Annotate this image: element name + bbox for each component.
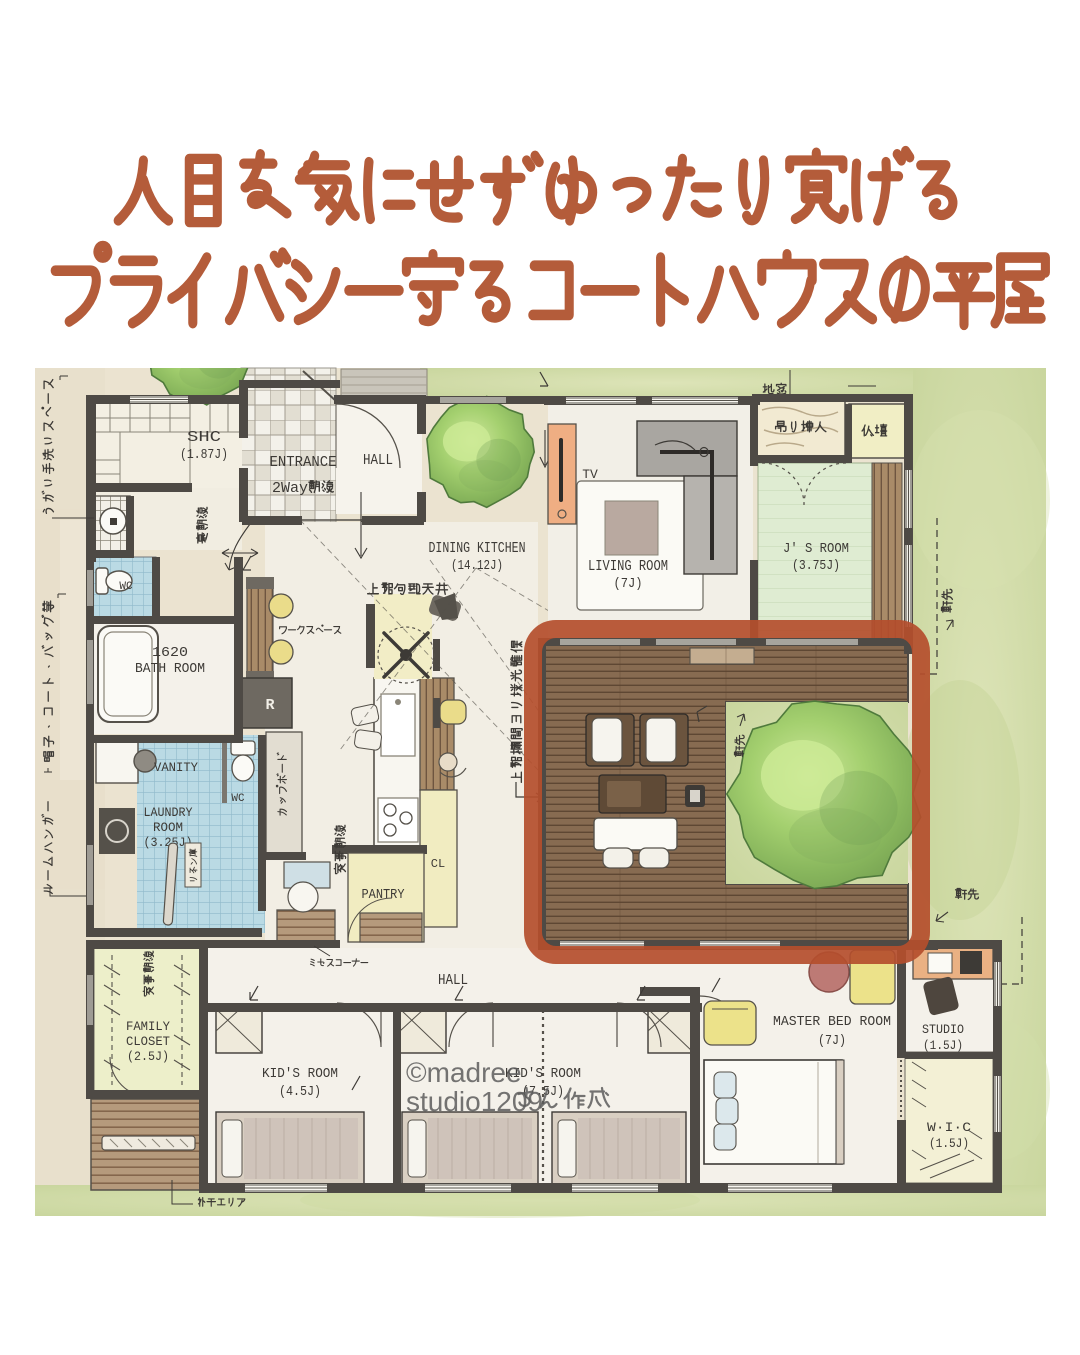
svg-text:ROOM: ROOM bbox=[153, 821, 183, 835]
svg-text:(4.5J): (4.5J) bbox=[279, 1085, 321, 1100]
svg-text:FAMILY: FAMILY bbox=[126, 1020, 170, 1034]
svg-text:KID'S ROOM: KID'S ROOM bbox=[262, 1066, 338, 1082]
svg-text:(1.5J): (1.5J) bbox=[929, 1137, 969, 1151]
svg-text:R: R bbox=[265, 697, 274, 714]
svg-text:STUDIO: STUDIO bbox=[922, 1022, 964, 1037]
svg-text:ENTRANCE: ENTRANCE bbox=[270, 454, 337, 471]
svg-text:(7J): (7J) bbox=[818, 1034, 846, 1049]
svg-text:TV: TV bbox=[582, 467, 598, 482]
svg-text:WC: WC bbox=[119, 581, 133, 593]
svg-text:MASTER BED ROOM: MASTER BED ROOM bbox=[773, 1014, 891, 1030]
svg-text:W·I·C: W·I·C bbox=[927, 1121, 971, 1135]
svg-text:(7J): (7J) bbox=[614, 576, 643, 592]
svg-text:studio1209: studio1209 bbox=[406, 1086, 543, 1117]
svg-text:©madree: ©madree bbox=[406, 1057, 522, 1088]
svg-text:CL: CL bbox=[431, 857, 445, 871]
svg-text:J' S ROOM: J' S ROOM bbox=[783, 541, 849, 557]
svg-text:PANTRY: PANTRY bbox=[362, 888, 405, 903]
svg-text:(3.75J): (3.75J) bbox=[792, 559, 840, 574]
svg-text:LAUNDRY: LAUNDRY bbox=[144, 806, 193, 820]
svg-text:(14.12J): (14.12J) bbox=[451, 558, 503, 574]
svg-text:(1.87J): (1.87J) bbox=[180, 447, 228, 463]
svg-text:1620: 1620 bbox=[152, 645, 188, 661]
svg-text:(1.5J): (1.5J) bbox=[923, 1038, 963, 1053]
svg-text:(2.5J): (2.5J) bbox=[127, 1050, 169, 1064]
svg-text:LIVING ROOM: LIVING ROOM bbox=[588, 558, 668, 575]
svg-text:VANITY: VANITY bbox=[154, 760, 198, 775]
svg-text:CLOSET: CLOSET bbox=[126, 1035, 170, 1049]
svg-text:DINING KITCHEN: DINING KITCHEN bbox=[429, 540, 526, 557]
svg-text:HALL: HALL bbox=[438, 972, 468, 989]
svg-text:HALL: HALL bbox=[363, 452, 393, 469]
svg-text:SHC: SHC bbox=[187, 429, 221, 446]
svg-text:2Way: 2Way bbox=[272, 480, 308, 497]
svg-text:BATH ROOM: BATH ROOM bbox=[135, 661, 205, 677]
